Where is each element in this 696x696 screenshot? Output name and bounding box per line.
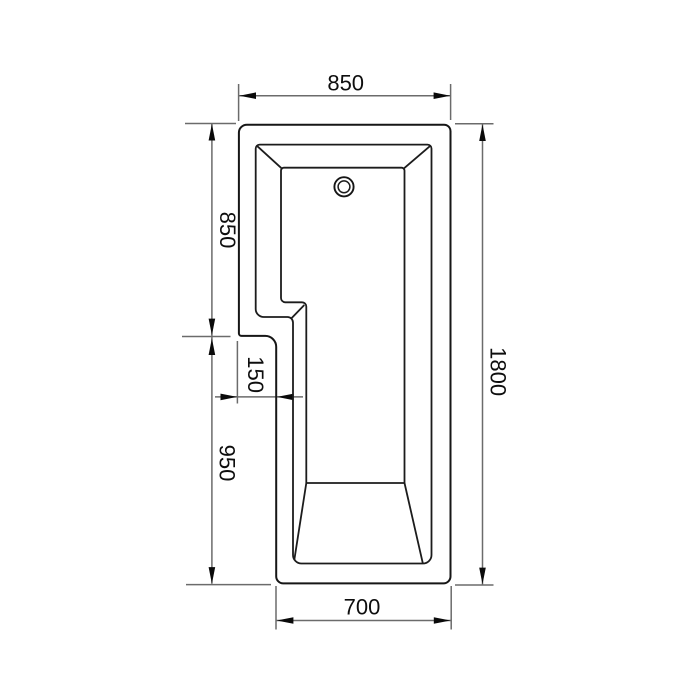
svg-text:700: 700 (344, 594, 381, 619)
svg-text:1800: 1800 (485, 347, 510, 396)
svg-text:850: 850 (327, 71, 364, 96)
svg-text:950: 950 (214, 445, 239, 482)
svg-text:150: 150 (243, 356, 268, 393)
svg-text:850: 850 (215, 212, 240, 249)
